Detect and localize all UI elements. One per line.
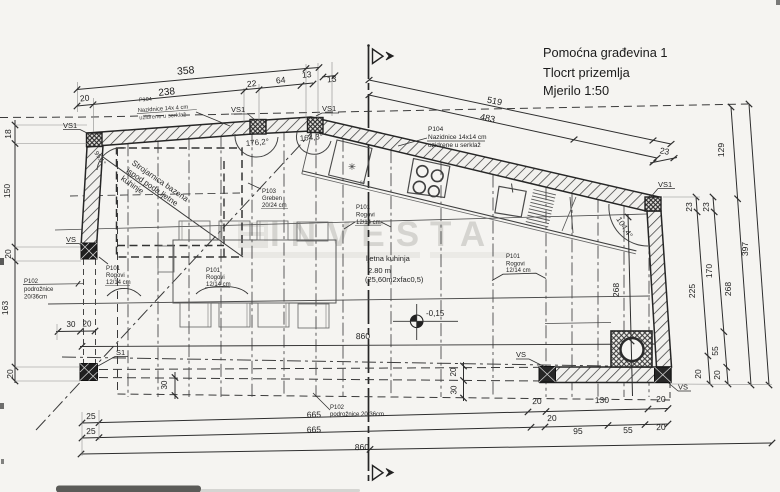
svg-text:860: 860	[355, 442, 370, 452]
svg-text:25: 25	[86, 411, 96, 421]
svg-text:2.80 m: 2.80 m	[368, 266, 391, 275]
svg-text:20: 20	[712, 370, 722, 380]
svg-text:VS1: VS1	[658, 180, 672, 189]
svg-text:30: 30	[450, 385, 459, 394]
svg-text:665: 665	[307, 409, 322, 419]
svg-text:358: 358	[176, 64, 195, 77]
svg-text:130: 130	[595, 395, 610, 405]
svg-text:uzidrene u serklaž: uzidrene u serklaž	[428, 142, 481, 149]
svg-text:12/14 cm: 12/14 cm	[356, 220, 381, 226]
svg-text:13: 13	[301, 69, 312, 80]
svg-text:55: 55	[623, 425, 633, 435]
svg-text:55: 55	[710, 346, 720, 356]
svg-text:Tlocrt prizemlja: Tlocrt prizemlja	[543, 65, 631, 80]
svg-text:VS: VS	[66, 235, 76, 244]
svg-text:20: 20	[656, 394, 666, 404]
svg-text:S1: S1	[116, 348, 125, 357]
svg-text:podrožnice: podrožnice	[24, 287, 54, 293]
svg-text:20: 20	[532, 396, 542, 406]
svg-text:VS1: VS1	[63, 121, 77, 130]
svg-text:20: 20	[449, 367, 458, 376]
svg-text:20/24 cm: 20/24 cm	[262, 203, 287, 209]
svg-text:20/36cm: 20/36cm	[24, 295, 47, 301]
svg-text:P104: P104	[139, 97, 152, 104]
svg-text:podrožnice 20/36cm: podrožnice 20/36cm	[330, 412, 384, 418]
svg-text:Rogovi: Rogovi	[506, 262, 525, 268]
svg-text:ljetna kuhinja: ljetna kuhinja	[366, 254, 411, 263]
svg-text:225: 225	[687, 284, 697, 298]
svg-text:Rogovi: Rogovi	[106, 273, 125, 279]
svg-text:-0,15: -0,15	[426, 309, 445, 318]
svg-text:95: 95	[573, 426, 583, 436]
svg-text:268: 268	[611, 283, 621, 297]
svg-text:20: 20	[3, 249, 13, 259]
svg-text:18: 18	[3, 129, 13, 139]
svg-text:860: 860	[356, 331, 371, 341]
svg-text:P103: P103	[262, 189, 277, 195]
svg-text:238: 238	[158, 86, 176, 99]
svg-text:Nazidnice 14x14 cm: Nazidnice 14x14 cm	[428, 134, 487, 141]
svg-text:665: 665	[307, 424, 322, 434]
svg-text:64: 64	[275, 75, 286, 86]
svg-text:VS1: VS1	[231, 105, 245, 114]
svg-text:268: 268	[723, 282, 733, 296]
svg-text:13: 13	[326, 74, 337, 85]
svg-text:P101: P101	[106, 266, 121, 272]
svg-text:129: 129	[716, 143, 726, 157]
svg-text:VS: VS	[516, 350, 526, 359]
svg-text:(25,60m2xfac0,5): (25,60m2xfac0,5)	[365, 275, 424, 284]
svg-text:20: 20	[5, 369, 15, 379]
svg-text:P101: P101	[356, 205, 371, 211]
svg-text:Greben: Greben	[262, 196, 282, 202]
svg-text:23: 23	[701, 202, 711, 212]
svg-text:✳: ✳	[348, 162, 356, 173]
svg-text:P102: P102	[330, 405, 345, 411]
svg-text:163: 163	[0, 301, 10, 315]
svg-text:VS: VS	[678, 383, 688, 392]
svg-text:20: 20	[656, 422, 666, 432]
svg-text:30: 30	[67, 320, 76, 329]
svg-text:P101: P101	[206, 268, 221, 274]
svg-text:397: 397	[740, 242, 750, 256]
svg-text:23: 23	[684, 202, 694, 212]
svg-text:Pomoćna građevina 1: Pomoćna građevina 1	[543, 45, 668, 60]
svg-text:Rogovi: Rogovi	[356, 213, 375, 219]
svg-text:150: 150	[2, 184, 12, 198]
svg-text:30: 30	[160, 380, 169, 389]
svg-text:P101: P101	[506, 254, 521, 260]
svg-text:20: 20	[693, 369, 703, 379]
svg-text:Mjerilo 1:50: Mjerilo 1:50	[543, 83, 609, 98]
svg-text:22: 22	[246, 78, 257, 89]
svg-text:VS1: VS1	[322, 104, 336, 113]
svg-text:20: 20	[79, 93, 90, 104]
svg-text:25: 25	[86, 426, 96, 436]
svg-text:170: 170	[704, 264, 714, 278]
svg-text:Rogovi: Rogovi	[206, 275, 225, 281]
svg-text:20: 20	[83, 320, 92, 329]
svg-text:P104: P104	[428, 126, 444, 133]
svg-text:20: 20	[547, 413, 557, 423]
svg-text:12/14 cm: 12/14 cm	[106, 280, 131, 286]
